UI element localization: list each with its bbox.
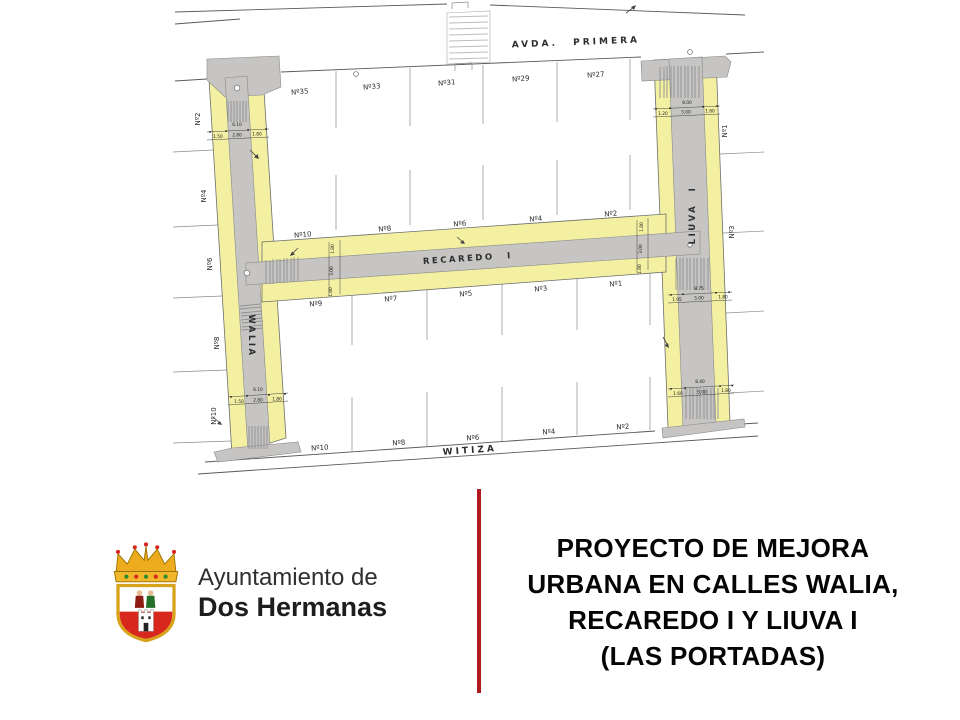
crosswalk-walia-bottom: [249, 426, 267, 449]
title-line-3: RECAREDO I Y LIUVA I: [492, 602, 934, 638]
site-plan: 6.10 1.50 2.80 1.80 6.10 1.50 2.80 1.80 …: [0, 0, 960, 492]
org-name-line1: Ayuntamiento de: [198, 564, 387, 592]
svg-text:1.80: 1.80: [330, 244, 336, 254]
plot-label: Nº4: [200, 189, 208, 203]
coat-of-arms-icon: [104, 540, 188, 646]
svg-text:1.50: 1.50: [213, 134, 223, 140]
plot-label: Nº6: [466, 434, 480, 443]
svg-text:1.95: 1.95: [672, 297, 682, 303]
plot-label: Nº8: [213, 337, 221, 350]
svg-text:1.80: 1.80: [721, 388, 731, 394]
svg-text:1.20: 1.20: [658, 111, 668, 117]
svg-text:3.00: 3.00: [638, 244, 644, 254]
plot-label: Nº33: [363, 82, 381, 91]
org-name-line2: Dos Hermanas: [198, 592, 387, 622]
logo-text: Ayuntamiento de Dos Hermanas: [198, 564, 387, 622]
svg-text:1.80: 1.80: [328, 287, 334, 297]
plot-label: Nº4: [542, 428, 556, 437]
vertical-divider: [477, 489, 481, 693]
svg-text:1.80: 1.80: [639, 222, 645, 232]
plot-label: Nº35: [291, 87, 309, 96]
plot-label: Nº1: [609, 279, 623, 288]
plot-label: Nº1: [721, 125, 729, 138]
plot-label: Nº2: [194, 113, 202, 126]
plot-label: Nº10: [294, 230, 312, 239]
svg-text:1.80: 1.80: [252, 132, 262, 138]
svg-text:3.00: 3.00: [329, 266, 335, 276]
slide-title: PROYECTO DE MEJORA URBANA EN CALLES WALI…: [492, 530, 934, 674]
plot-label: Nº27: [587, 70, 605, 79]
svg-text:1.80: 1.80: [718, 295, 728, 301]
plot-label: Nº6: [453, 219, 467, 228]
plot-label: Nº2: [604, 209, 618, 218]
svg-text:8.00: 8.00: [682, 100, 692, 106]
svg-text:1.50: 1.50: [234, 399, 244, 405]
plot-label: Nº3: [728, 226, 736, 239]
street-label-witiza: WITIZA: [442, 444, 497, 458]
crosswalk-walia-top: [228, 101, 246, 122]
plot-label: Nº10: [210, 407, 218, 424]
svg-text:5.00: 5.00: [681, 110, 691, 116]
svg-text:1.60: 1.60: [673, 391, 683, 397]
svg-text:2.80: 2.80: [253, 398, 263, 404]
title-line-2: URBANA EN CALLES WALIA,: [492, 566, 934, 602]
plot-label: Nº31: [438, 78, 456, 87]
svg-text:5.00: 5.00: [697, 390, 707, 396]
plot-label: Nº3: [534, 284, 548, 293]
plot-label: Nº29: [512, 74, 530, 83]
plot-label: Nº10: [311, 443, 329, 452]
svg-text:8.75: 8.75: [694, 286, 704, 292]
slide: 6.10 1.50 2.80 1.80 6.10 1.50 2.80 1.80 …: [0, 0, 960, 720]
svg-text:1.80: 1.80: [705, 109, 715, 115]
plot-label: Nº8: [392, 439, 406, 448]
plot-label: Nº9: [309, 299, 323, 308]
svg-text:2.80: 2.80: [232, 133, 242, 139]
svg-text:8.40: 8.40: [695, 379, 705, 385]
plot-label: Nº4: [529, 214, 543, 223]
title-line-1: PROYECTO DE MEJORA: [492, 530, 934, 566]
plot-label: Nº6: [206, 257, 214, 271]
plot-label: Nº8: [378, 224, 392, 233]
svg-text:1.80: 1.80: [637, 264, 643, 274]
crosswalk-avda-primera: [447, 2, 490, 71]
dos-hermanas-logo: Ayuntamiento de Dos Hermanas: [104, 540, 387, 646]
street-label-walia: WALIA: [246, 314, 256, 357]
street-label-liuva: LIUVA I: [688, 186, 698, 245]
plot-label: Nº5: [459, 289, 473, 298]
plot-label: Nº7: [384, 294, 398, 303]
svg-text:1.80: 1.80: [272, 397, 282, 403]
street-label-avda-primera: AVDA. PRIMERA: [512, 36, 641, 51]
svg-text:5.00: 5.00: [694, 296, 704, 302]
svg-text:6.10: 6.10: [253, 387, 263, 393]
plot-label: Nº2: [616, 423, 630, 432]
svg-text:6.10: 6.10: [232, 122, 242, 128]
title-line-4: (LAS PORTADAS): [492, 638, 934, 674]
